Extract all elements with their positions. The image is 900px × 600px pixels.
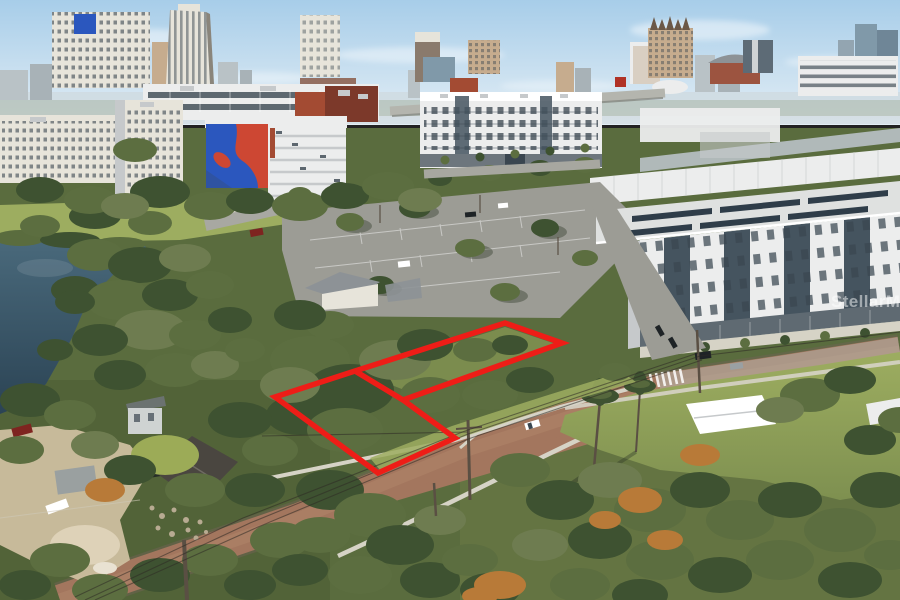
lot-car-white: [498, 203, 508, 209]
billboard-blue: [74, 14, 96, 34]
lot-van-white: [398, 260, 411, 267]
tall-tower: [166, 4, 214, 84]
hospital-complex: [798, 56, 898, 96]
aerial-photo: StellarMLS: [0, 0, 900, 600]
lot-car-dark: [465, 211, 476, 217]
white-office-slab: [52, 12, 150, 88]
red-sign: [615, 77, 626, 87]
mls-watermark: StellarMLS: [831, 292, 900, 311]
crown-building: [648, 16, 693, 78]
